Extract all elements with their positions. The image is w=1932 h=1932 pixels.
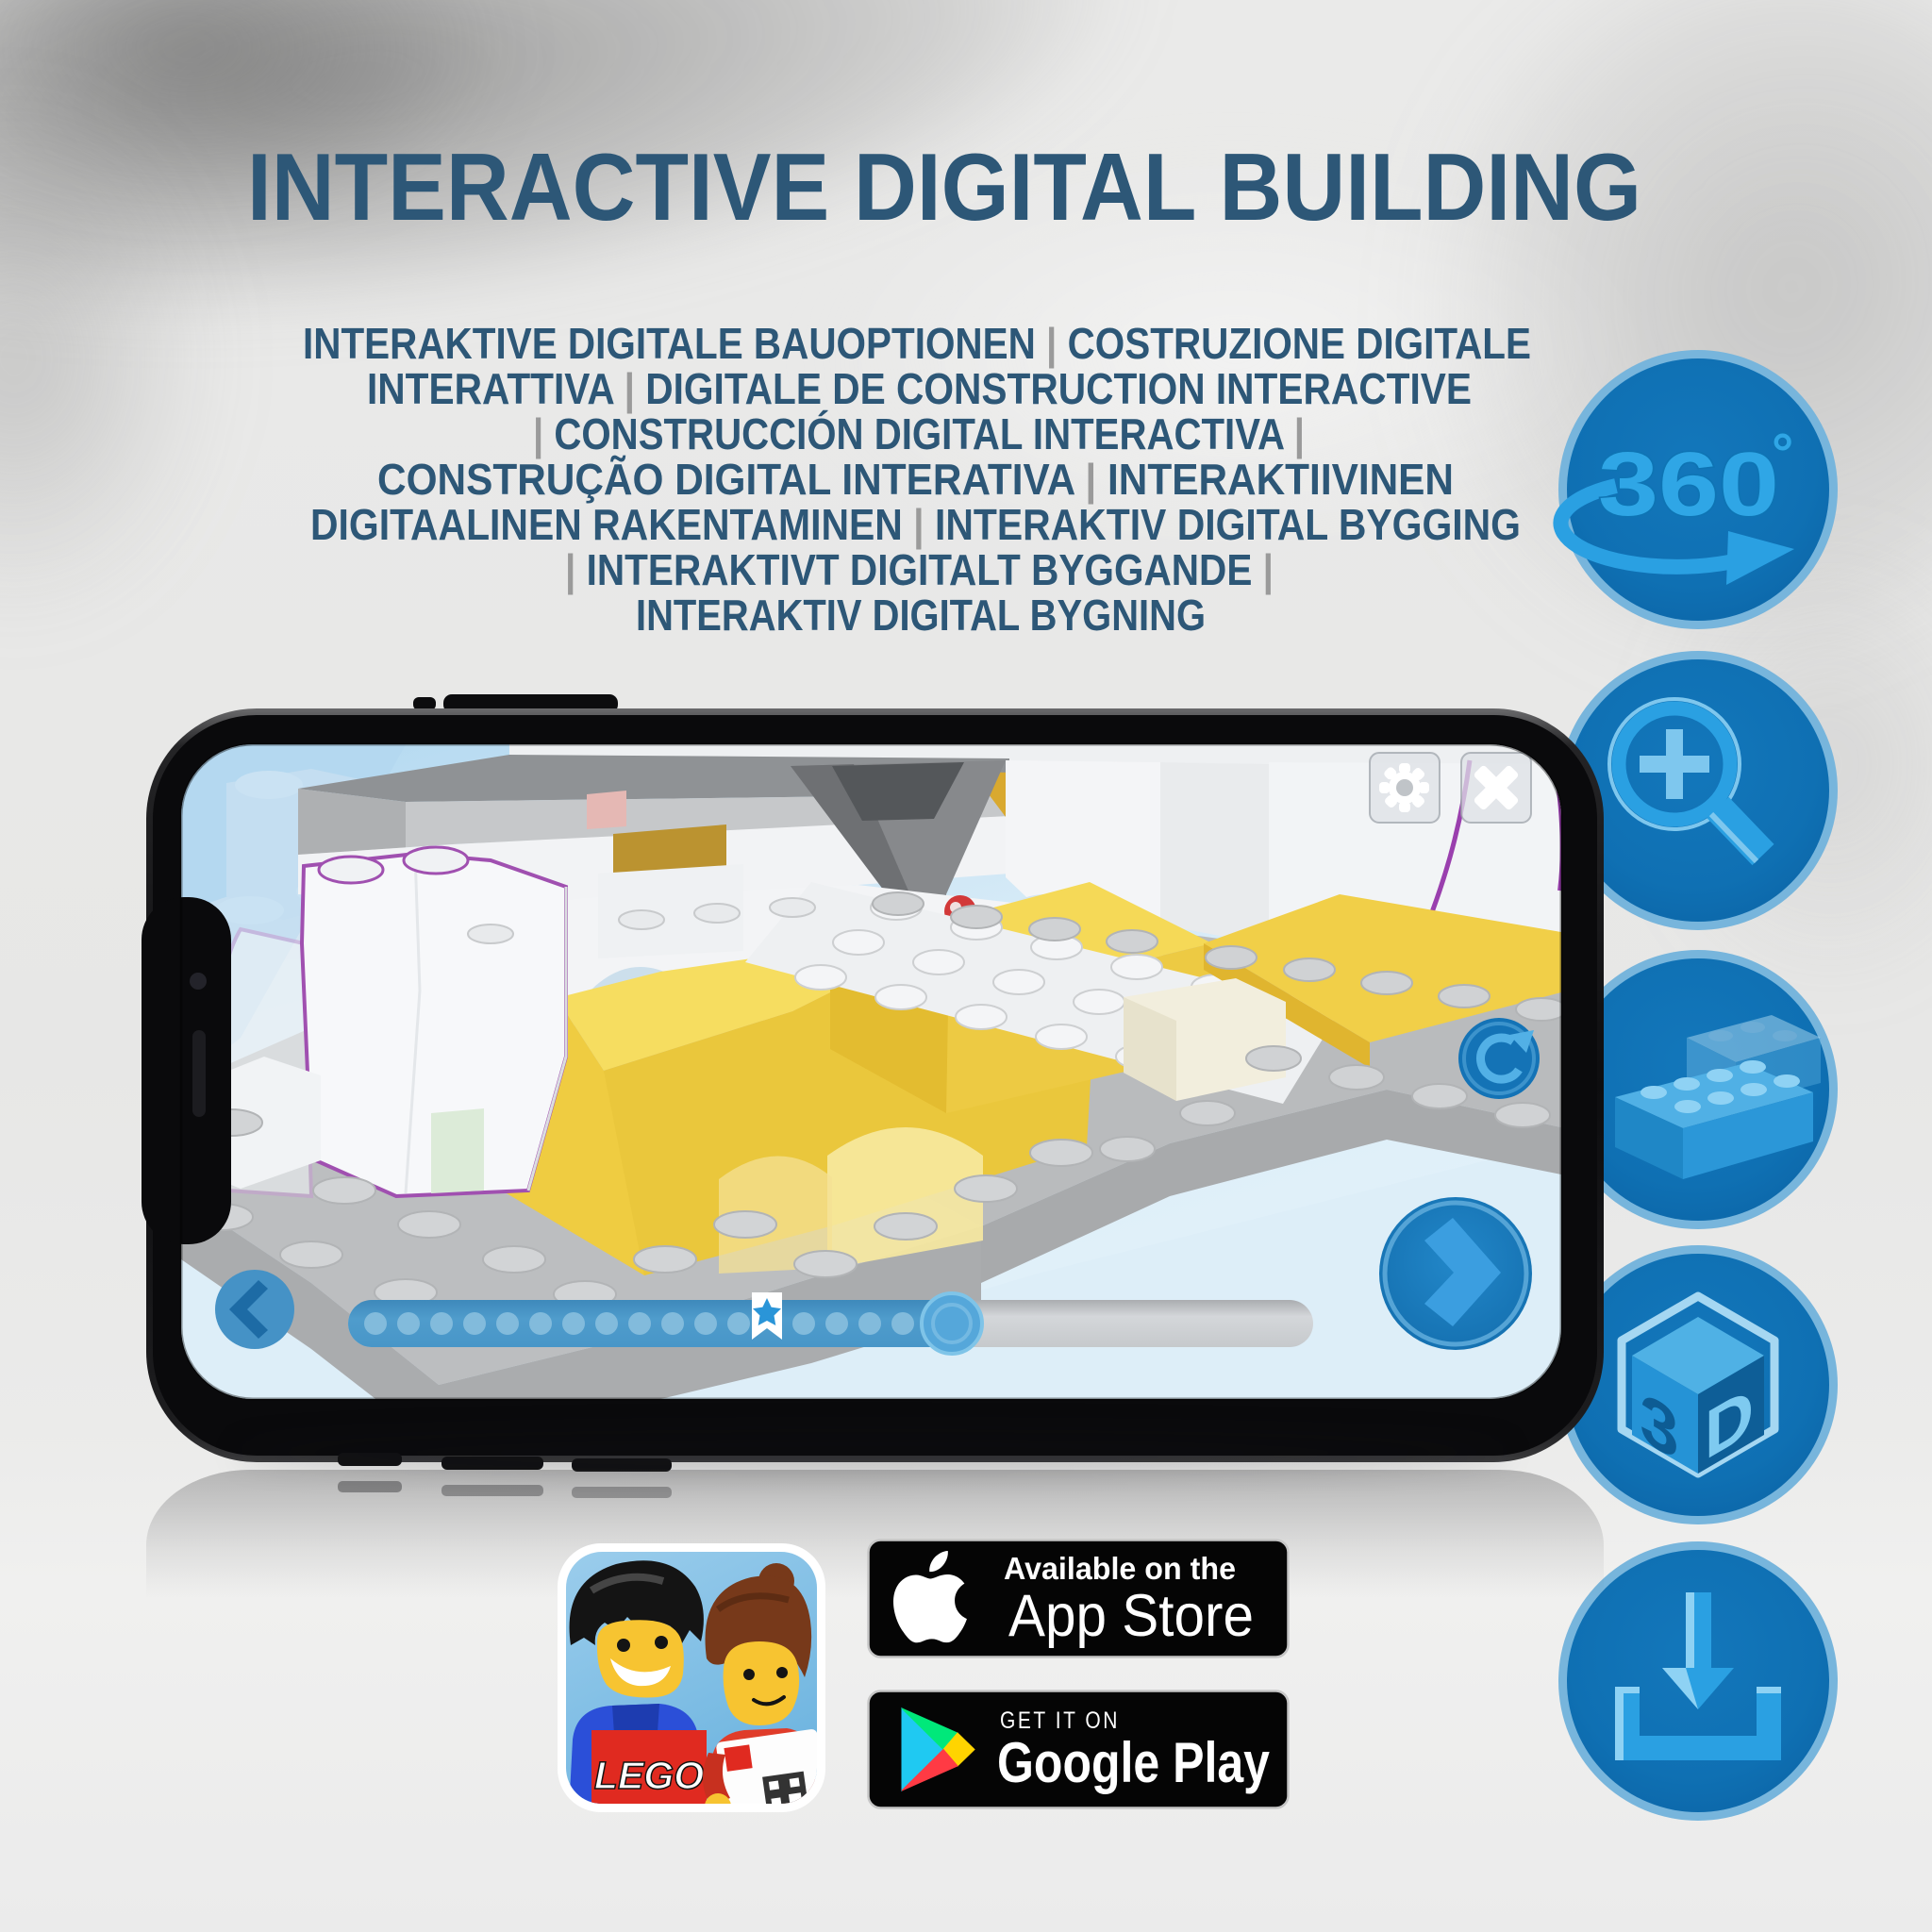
- svg-text:| CONSTRUCCIÓN DIGITAL INTERAC: | CONSTRUCCIÓN DIGITAL INTERACTIVA |: [533, 409, 1305, 458]
- svg-text:INTERATTIVA | DIGITALE DE CONS: INTERATTIVA | DIGITALE DE CONSTRUCTION I…: [367, 364, 1472, 413]
- svg-text:GET IT ON: GET IT ON: [1000, 1707, 1120, 1734]
- svg-text:360: 360: [1598, 434, 1779, 535]
- svg-text:INTERAKTIV DIGITAL BYGNING: INTERAKTIV DIGITAL BYGNING: [636, 591, 1206, 640]
- svg-text:App Store: App Store: [1008, 1583, 1254, 1649]
- svg-text:LEGO: LEGO: [594, 1754, 704, 1797]
- svg-text:INTERACTIVE DIGITAL BUILDING: INTERACTIVE DIGITAL BUILDING: [247, 135, 1641, 241]
- svg-text:°: °: [1772, 423, 1793, 484]
- svg-text:| INTERAKTIVT DIGITALT BYGGAND: | INTERAKTIVT DIGITALT BYGGANDE |: [565, 545, 1274, 594]
- svg-text:DIGITAALINEN RAKENTAMINEN | IN: DIGITAALINEN RAKENTAMINEN | INTERAKTIV D…: [310, 500, 1521, 549]
- svg-text:INTERAKTIVE DIGITALE BAUOPTION: INTERAKTIVE DIGITALE BAUOPTIONEN | COSTR…: [303, 319, 1531, 368]
- svg-text:Google Play: Google Play: [997, 1731, 1271, 1794]
- svg-text:Available on the: Available on the: [1004, 1551, 1236, 1586]
- svg-text:CONSTRUÇÃO DIGITAL INTERATIVA: CONSTRUÇÃO DIGITAL INTERATIVA | INTERAKT…: [377, 455, 1454, 504]
